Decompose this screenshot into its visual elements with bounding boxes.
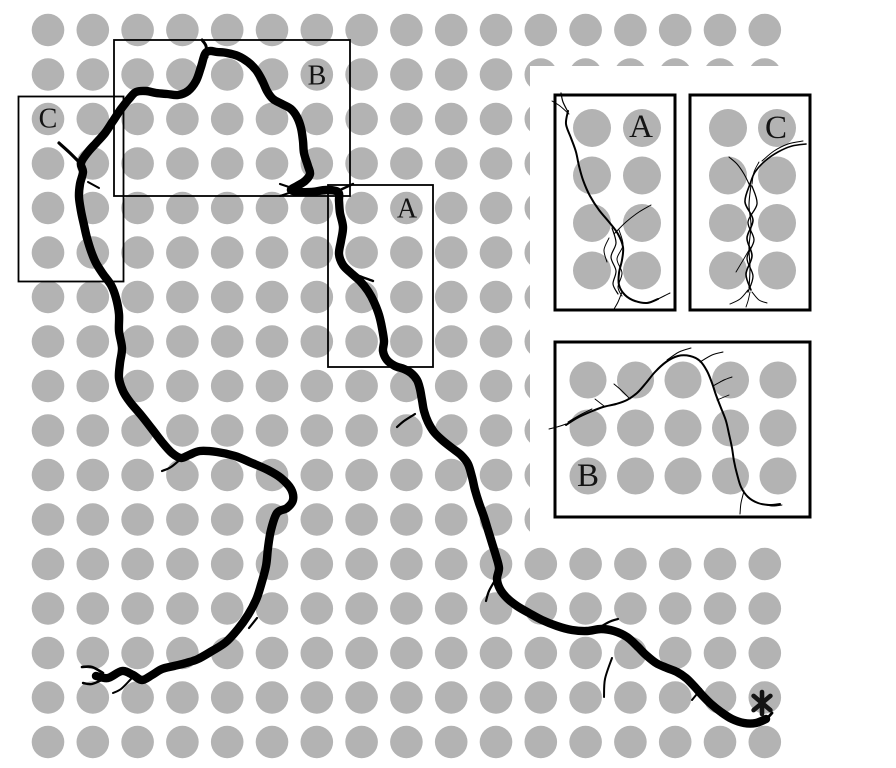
pillar (480, 58, 513, 91)
region-label-C: C (39, 104, 58, 135)
pillar (301, 681, 334, 714)
pillar (32, 14, 65, 47)
pillar (256, 325, 289, 358)
pillar (121, 503, 154, 536)
pillar (256, 637, 289, 670)
pillar (345, 325, 378, 358)
pillar (256, 726, 289, 759)
pillar (659, 592, 692, 625)
pillar (77, 726, 110, 759)
pillar (345, 414, 378, 447)
pillar (77, 681, 110, 714)
pillar (480, 14, 513, 47)
pillar (301, 459, 334, 492)
pillar (121, 236, 154, 269)
pillar (166, 548, 199, 581)
pillar (435, 681, 468, 714)
pillar (77, 325, 110, 358)
pillar (525, 637, 558, 670)
pillar (659, 726, 692, 759)
pillar (480, 236, 513, 269)
pillar (345, 726, 378, 759)
inset-pillar (665, 362, 702, 399)
pillar (301, 548, 334, 581)
pillar (390, 103, 423, 136)
pillar (345, 503, 378, 536)
pillar (77, 14, 110, 47)
pillar (704, 548, 737, 581)
pillar (211, 325, 244, 358)
pillar (32, 236, 65, 269)
pillar (390, 548, 423, 581)
pillar (211, 592, 244, 625)
inset-pillar (623, 252, 661, 290)
pillar (256, 147, 289, 180)
pillar (121, 459, 154, 492)
pillar (480, 459, 513, 492)
inset-pillar (709, 109, 747, 147)
inset-pillar (617, 410, 654, 447)
pillar (77, 58, 110, 91)
pillar (435, 726, 468, 759)
pillar (390, 281, 423, 314)
pillar (749, 637, 782, 670)
pillar (435, 58, 468, 91)
inset-pillar (758, 204, 796, 242)
pillar (301, 414, 334, 447)
pillar (525, 726, 558, 759)
pillar (211, 236, 244, 269)
inset-pillar (760, 362, 797, 399)
pillar (301, 592, 334, 625)
pillar (121, 681, 154, 714)
pillar (32, 592, 65, 625)
pillar (480, 192, 513, 225)
figure-svg: CBAACB (0, 0, 896, 768)
pillar (390, 681, 423, 714)
pillar (211, 459, 244, 492)
pillar (435, 459, 468, 492)
pillar (480, 726, 513, 759)
inset-pillar (709, 252, 747, 290)
pillar (32, 637, 65, 670)
pillar (211, 681, 244, 714)
pillar (77, 637, 110, 670)
inset-pillar (573, 204, 611, 242)
pillar (32, 58, 65, 91)
pillar (211, 503, 244, 536)
pillar (32, 459, 65, 492)
inset-pillar (665, 458, 702, 495)
pillar (77, 503, 110, 536)
pillar (345, 681, 378, 714)
pillar (749, 592, 782, 625)
pillar (704, 637, 737, 670)
pillar (614, 548, 647, 581)
pillar (525, 548, 558, 581)
pillar (166, 370, 199, 403)
pillar (390, 459, 423, 492)
pillar (345, 236, 378, 269)
pillar (480, 681, 513, 714)
pillar (749, 726, 782, 759)
pillar (77, 459, 110, 492)
pillar (390, 726, 423, 759)
pillar (569, 681, 602, 714)
pillar (77, 281, 110, 314)
pillar (77, 370, 110, 403)
pillar (256, 14, 289, 47)
pillar (614, 726, 647, 759)
pillar (704, 14, 737, 47)
pillar (32, 370, 65, 403)
pillar (121, 548, 154, 581)
pillar (435, 281, 468, 314)
pillar (390, 236, 423, 269)
pillar (211, 103, 244, 136)
pillar (435, 548, 468, 581)
pillar (614, 14, 647, 47)
pillar (166, 147, 199, 180)
pillar (301, 637, 334, 670)
pillar (569, 548, 602, 581)
pillar (121, 325, 154, 358)
inset-pillar (617, 458, 654, 495)
inset-pillar (665, 410, 702, 447)
inset-pillar (623, 157, 661, 195)
pillar (166, 325, 199, 358)
pillar (166, 726, 199, 759)
pillar (569, 726, 602, 759)
pillar (121, 637, 154, 670)
pillar (390, 14, 423, 47)
pillar (166, 592, 199, 625)
pillar (121, 14, 154, 47)
pillar (211, 147, 244, 180)
pillar (614, 592, 647, 625)
pillar (435, 236, 468, 269)
pillar (211, 548, 244, 581)
pillar (121, 58, 154, 91)
pillar (166, 414, 199, 447)
pillar (345, 592, 378, 625)
pillar (435, 592, 468, 625)
inset-pillar (712, 458, 749, 495)
inset-pillar (709, 157, 747, 195)
pillar (256, 414, 289, 447)
pillar (480, 281, 513, 314)
pillar (435, 14, 468, 47)
pillar-array-figure: CBAACB (0, 0, 896, 768)
pillar (211, 14, 244, 47)
inset-pillar (758, 252, 796, 290)
inset-panel-A: A (552, 93, 675, 310)
pillar (301, 503, 334, 536)
pillar (345, 548, 378, 581)
pillar (390, 147, 423, 180)
pillar (301, 726, 334, 759)
pillar (211, 370, 244, 403)
pillar (32, 503, 65, 536)
inset-pillar (570, 362, 607, 399)
pillar (32, 147, 65, 180)
pillar (480, 103, 513, 136)
pillar (301, 370, 334, 403)
pillar (749, 548, 782, 581)
figure-canvas: CBAACB (0, 0, 896, 768)
pillar (480, 414, 513, 447)
pillar (480, 325, 513, 358)
pillar (569, 14, 602, 47)
pillar (166, 281, 199, 314)
pillar (256, 281, 289, 314)
region-label-A: A (397, 194, 418, 225)
pillar (659, 548, 692, 581)
region-label-B: B (308, 61, 327, 92)
pillar (211, 726, 244, 759)
pillar (480, 637, 513, 670)
pillar (345, 370, 378, 403)
pillar (659, 14, 692, 47)
pillar (390, 325, 423, 358)
pillar (121, 592, 154, 625)
pillar (121, 726, 154, 759)
pillar (301, 14, 334, 47)
pillar (480, 370, 513, 403)
pillar (256, 236, 289, 269)
pillar (480, 147, 513, 180)
pillar (32, 414, 65, 447)
pillar (435, 325, 468, 358)
pillar (211, 414, 244, 447)
pillar (166, 14, 199, 47)
pillar (569, 637, 602, 670)
inset-label-B: B (577, 458, 599, 494)
inset-pillar (760, 458, 797, 495)
inset-pillar (760, 410, 797, 447)
inset-pillar (570, 410, 607, 447)
pillar (211, 281, 244, 314)
inset-label-A: A (629, 109, 653, 145)
pillar (32, 281, 65, 314)
pillar (435, 192, 468, 225)
pillar (525, 681, 558, 714)
pillar (435, 370, 468, 403)
pillar (435, 103, 468, 136)
inset-panel-B: B (549, 342, 810, 517)
pillar (211, 58, 244, 91)
pillar (121, 281, 154, 314)
pillar (390, 503, 423, 536)
pillar (345, 637, 378, 670)
pillar (166, 503, 199, 536)
pillar (166, 459, 199, 492)
pillar (525, 14, 558, 47)
pillar (345, 459, 378, 492)
pillar (704, 726, 737, 759)
inset-panel-C: C (690, 95, 810, 310)
pillar (390, 637, 423, 670)
pillar (32, 325, 65, 358)
pillar (390, 58, 423, 91)
pillar (256, 370, 289, 403)
pillar (32, 548, 65, 581)
pillar (614, 681, 647, 714)
pillar (77, 592, 110, 625)
pillar (166, 103, 199, 136)
pillar (77, 414, 110, 447)
pillar (166, 236, 199, 269)
pillar (659, 681, 692, 714)
pillar (390, 592, 423, 625)
pillar (121, 147, 154, 180)
inset-pillar (573, 109, 611, 147)
inset-pillar (709, 204, 747, 242)
inset-pillar (712, 362, 749, 399)
pillar (256, 681, 289, 714)
pillar (166, 681, 199, 714)
pillar (435, 503, 468, 536)
pillar (32, 681, 65, 714)
pillar (749, 14, 782, 47)
pillar (32, 726, 65, 759)
pillar (32, 192, 65, 225)
inset-label-C: C (765, 110, 787, 146)
pillar (435, 147, 468, 180)
pillar (704, 592, 737, 625)
pillar (569, 592, 602, 625)
pillar (77, 548, 110, 581)
pillar (435, 637, 468, 670)
